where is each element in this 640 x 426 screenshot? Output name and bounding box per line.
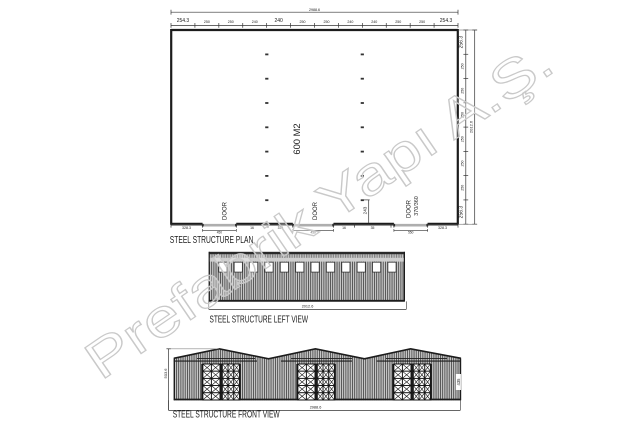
svg-text:DOOR: DOOR (407, 199, 413, 218)
svg-text:435: 435 (456, 378, 461, 386)
svg-text:600 M2: 600 M2 (291, 123, 302, 154)
svg-text:250: 250 (204, 20, 210, 24)
svg-text:250: 250 (460, 161, 464, 167)
svg-text:DOOR: DOOR (223, 201, 229, 220)
svg-text:328.3: 328.3 (438, 226, 447, 230)
svg-text:250: 250 (460, 63, 464, 69)
svg-text:254.3: 254.3 (440, 18, 453, 24)
svg-text:503.6: 503.6 (163, 368, 168, 379)
svg-text:240: 240 (371, 20, 377, 24)
svg-text:2012.6: 2012.6 (302, 305, 314, 309)
svg-text:STEEL STRUCTURE FRONT VIEW: STEEL STRUCTURE FRONT VIEW (173, 410, 280, 421)
svg-text:240: 240 (252, 20, 258, 24)
svg-text:35: 35 (371, 226, 375, 230)
svg-text:2988.6: 2988.6 (309, 8, 320, 12)
svg-text:2988.6: 2988.6 (310, 406, 322, 410)
svg-text:250: 250 (228, 20, 234, 24)
svg-text:250: 250 (395, 20, 401, 24)
svg-text:250: 250 (300, 20, 306, 24)
svg-text:STEEL STRUCTURE LEFT VIEW: STEEL STRUCTURE LEFT VIEW (210, 315, 309, 326)
svg-text:240: 240 (274, 18, 283, 24)
svg-text:254.3: 254.3 (177, 18, 190, 24)
svg-text:250: 250 (419, 20, 425, 24)
svg-text:240: 240 (347, 20, 353, 24)
svg-text:256.3: 256.3 (458, 36, 464, 49)
svg-text:370/360: 370/360 (414, 196, 420, 216)
svg-text:250: 250 (460, 185, 464, 191)
svg-text:256.3: 256.3 (458, 206, 464, 219)
svg-text:328.3: 328.3 (182, 226, 191, 230)
svg-text:550: 550 (408, 231, 414, 235)
svg-text:250: 250 (323, 20, 329, 24)
